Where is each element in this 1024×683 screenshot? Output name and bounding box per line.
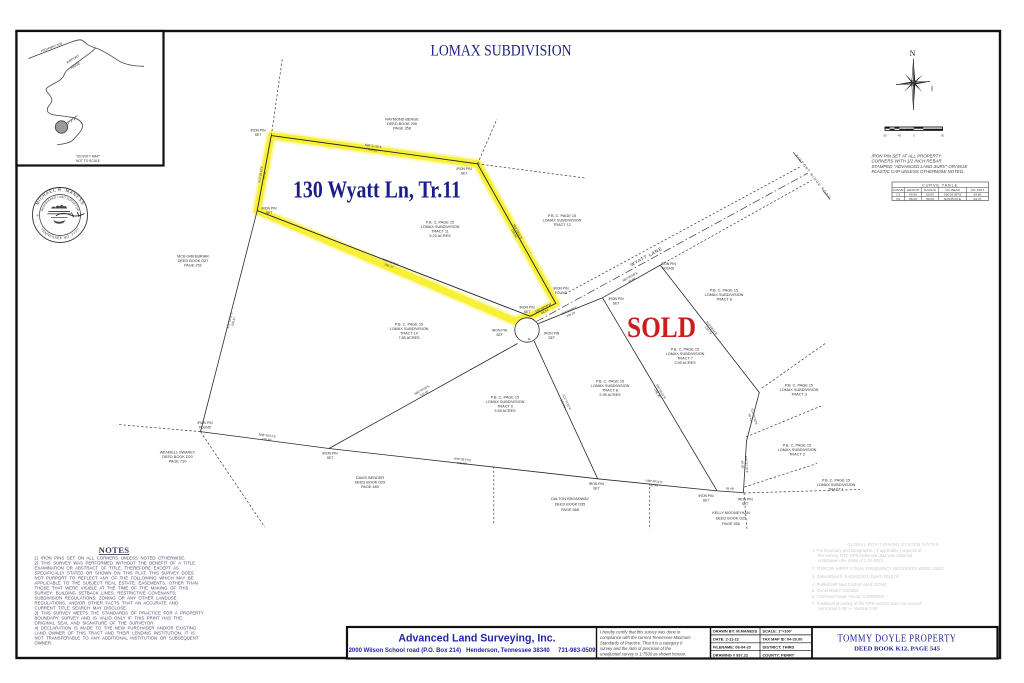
svg-text:SCALE: 1"=100': SCALE: 1"=100': [763, 629, 792, 634]
svg-text:TRACT 6: TRACT 6: [716, 298, 732, 302]
svg-text:on/between the dates of 2-10-2: on/between the dates of 2-10-2022.: [818, 558, 884, 563]
svg-text:IRON PIN: IRON PIN: [608, 297, 624, 301]
svg-text:FOUND: FOUND: [199, 426, 212, 430]
svg-text:SET: SET: [255, 133, 262, 137]
svg-text:2. TOPCON HIPER V DUAL FREQUEN: 2. TOPCON HIPER V DUAL FREQUENCY RECEIVE…: [812, 566, 945, 571]
svg-text:48.58': 48.58': [740, 460, 745, 469]
svg-text:P.B. C, PAGE 15: P.B. C, PAGE 15: [785, 384, 813, 388]
svg-text:DEED BOOK D25: DEED BOOK D25: [716, 517, 747, 521]
svg-text:NOT TO SCALE: NOT TO SCALE: [76, 159, 101, 163]
svg-text:LOMAX SUBDIVISION: LOMAX SUBDIVISION: [390, 327, 429, 331]
svg-text:64.37: 64.37: [974, 197, 982, 201]
svg-text:WENDELL SWAREY: WENDELL SWAREY: [160, 451, 196, 455]
svg-text:130 Wyatt Ln, Tr.11: 130 Wyatt Ln, Tr.11: [293, 177, 461, 204]
svg-text:CURVE TABLE: CURVE TABLE: [922, 182, 958, 187]
svg-text:COUNTY: PERRY: COUNTY: PERRY: [763, 652, 795, 657]
svg-text:IRON PIN: IRON PIN: [553, 287, 569, 291]
svg-text:SET: SET: [703, 499, 710, 503]
svg-text:IRON PIN: IRON PIN: [492, 329, 508, 333]
svg-text:PAGE 358: PAGE 358: [393, 127, 411, 131]
svg-text:P.B. C, PAGE 15: P.B. C, PAGE 15: [822, 479, 850, 483]
svg-text:CD. BEAR: CD. BEAR: [945, 188, 960, 192]
svg-text:FOUND: FOUND: [555, 291, 568, 295]
svg-text:11: 11: [527, 337, 530, 341]
svg-text:SET: SET: [742, 502, 749, 506]
svg-text:DEED BOOK K12, PAGE 545: DEED BOOK K12, PAGE 545: [854, 646, 940, 653]
svg-text:CURVE: CURVE: [893, 188, 904, 192]
svg-text:Horizontal 0.08' +/- Vertica: Horizontal 0.08' +/- Vertical 0.08': [818, 606, 878, 611]
svg-text:PAGE 568: PAGE 568: [561, 508, 579, 512]
svg-text:2.95 ACRES: 2.95 ACRES: [599, 393, 621, 397]
svg-text:1987: 1987: [930, 86, 934, 93]
svg-text:2.99 ACRES: 2.99 ACRES: [674, 361, 696, 365]
svg-text:50.00: 50.00: [926, 197, 934, 201]
svg-text:SET: SET: [266, 211, 273, 215]
svg-text:OWNER.: OWNER.: [35, 641, 53, 646]
svg-text:PLASTIC CAP UNLESS OTHERWISE N: PLASTIC CAP UNLESS OTHERWISE NOTED.: [872, 169, 965, 174]
svg-text:IRON PIN: IRON PIN: [698, 494, 714, 498]
svg-text:IRON PIN: IRON PIN: [250, 129, 266, 133]
svg-text:NOT TRANSFERABLE TO ANY ADDITI: NOT TRANSFERABLE TO ANY ADDITIONAL INSTI…: [35, 636, 199, 641]
svg-text:SET: SET: [613, 302, 620, 306]
svg-text:LOMAX SUBDIVISION: LOMAX SUBDIVISION: [431, 41, 572, 60]
svg-text:unadjusted survey is 1:7500 as: unadjusted survey is 1:7500 as shown her…: [600, 652, 686, 657]
svg-text:"VICINITY MAP": "VICINITY MAP": [76, 155, 101, 159]
svg-text:P.B. C, PAGE 15: P.B. C, PAGE 15: [426, 221, 454, 225]
svg-text:LOMAX SUBDIVISION: LOMAX SUBDIVISION: [421, 225, 460, 229]
svg-text:PAGE 252: PAGE 252: [184, 264, 202, 268]
svg-text:SET: SET: [593, 487, 600, 491]
svg-text:I hereby certify that this sur: I hereby certify that this survey was do…: [600, 630, 681, 635]
svg-text:LOMAX SUBDIVISION: LOMAX SUBDIVISION: [705, 293, 744, 297]
svg-text:P.B. C, PAGE 15: P.B. C, PAGE 15: [548, 214, 576, 218]
svg-text:IRON PIN: IRON PIN: [544, 332, 560, 336]
svg-text:TRACT 7: TRACT 7: [677, 357, 693, 361]
svg-text:FILENAME: 08-04-20: FILENAME: 08-04-20: [713, 644, 751, 649]
svg-text:98.48': 98.48': [726, 486, 735, 491]
svg-text:DEED BOOK 206: DEED BOOK 206: [387, 122, 417, 126]
svg-text:50: 50: [883, 134, 887, 138]
svg-text:TRACT 8: TRACT 8: [602, 389, 618, 393]
svg-text:IRON PIN: IRON PIN: [456, 167, 472, 171]
svg-text:DATE: 2-11-22: DATE: 2-11-22: [713, 637, 740, 642]
svg-text:DISTRICT: THIRD: DISTRICT: THIRD: [763, 644, 795, 649]
svg-text:CD. DIST: CD. DIST: [971, 188, 984, 192]
svg-text:TAX MAP ID: 04-20.00: TAX MAP ID: 04-20.00: [763, 637, 803, 642]
svg-text:DEED BOOK D25: DEED BOOK D25: [355, 481, 386, 485]
svg-text:TRACT 10: TRACT 10: [400, 332, 418, 336]
svg-text:C2: C2: [896, 197, 900, 201]
svg-text:PAGE 556: PAGE 556: [722, 522, 740, 526]
svg-text:SET: SET: [548, 336, 555, 340]
svg-text:IRON PIN: IRON PIN: [738, 498, 754, 502]
svg-text:N: N: [910, 49, 916, 58]
svg-text:IRON PIN: IRON PIN: [197, 421, 213, 425]
svg-text:LOMAX SUBDIVISION: LOMAX SUBDIVISION: [817, 483, 856, 487]
svg-text:TRACT 9: TRACT 9: [497, 405, 513, 409]
svg-text:SET: SET: [461, 172, 468, 176]
svg-text:IRON PIN: IRON PIN: [589, 482, 605, 486]
svg-text:TRACT 11: TRACT 11: [431, 230, 449, 234]
svg-text:LOMAX SUBDIVISION: LOMAX SUBDIVISION: [778, 448, 817, 452]
svg-text:LOMAX SUBDIVISION: LOMAX SUBDIVISION: [543, 219, 582, 223]
svg-text:5.23 ACRES: 5.23 ACRES: [429, 234, 451, 238]
svg-text:7.85 ACRES: 7.85 ACRES: [398, 336, 420, 340]
svg-text:DALTON BROADWAY: DALTON BROADWAY: [551, 497, 589, 501]
svg-text:RADIUS: RADIUS: [924, 188, 936, 192]
svg-text:GLOBAL POSITIONING SYSTEM NOTE: GLOBAL POSITIONING SYSTEM NOTES: [847, 542, 939, 547]
svg-text:TRACT 12: TRACT 12: [553, 223, 571, 227]
svg-text:6. Combined Scale Factor: 0.99: 6. Combined Scale Factor: 0.99996027: [812, 594, 886, 599]
svg-text:N26'25'43"E: N26'25'43"E: [944, 197, 961, 201]
svg-text:4. Published/Fixed Control Use: 4. Published/Fixed Control Used: NONE: [812, 582, 887, 587]
svg-text:DEED BOOK D27: DEED BOOK D27: [178, 259, 209, 263]
svg-text:MCB GREEBRIAR: MCB GREEBRIAR: [177, 255, 209, 259]
svg-text:P.B. C, PAGE 15: P.B. C, PAGE 15: [395, 323, 423, 327]
svg-text:+: +: [37, 213, 40, 218]
svg-text:P.B. C, PAGE 15: P.B. C, PAGE 15: [671, 348, 699, 352]
svg-text:P.B. C, PAGE 15: P.B. C, PAGE 15: [596, 380, 624, 384]
svg-text:SOLD: SOLD: [627, 311, 696, 344]
svg-text:DRAWING # 937.22: DRAWING # 937.22: [713, 652, 749, 657]
svg-text:TRACT 1: TRACT 1: [828, 488, 844, 492]
svg-text:PAGE 710: PAGE 710: [169, 460, 187, 464]
svg-text:DAVID BENDER: DAVID BENDER: [356, 476, 384, 480]
svg-text:SET: SET: [496, 333, 503, 337]
svg-text:3. Datum/Epoch: NAD83(2011) Ep: 3. Datum/Epoch: NAD83(2011) Epoch 2010.0…: [812, 574, 900, 579]
svg-text:P.B. C, PAGE 15: P.B. C, PAGE 15: [710, 289, 738, 293]
svg-text:LOMAX SUBDIVISION: LOMAX SUBDIVISION: [591, 384, 630, 388]
svg-text:IRON PIN: IRON PIN: [322, 452, 338, 456]
svg-text:Advanced Land Surveying, Inc.: Advanced Land Surveying, Inc.: [398, 633, 555, 645]
svg-text:80.26: 80.26: [909, 197, 917, 201]
svg-text:DEED BOOK D35: DEED BOOK D35: [555, 503, 586, 507]
svg-text:IRON PIN: IRON PIN: [661, 262, 677, 266]
svg-text:LENGTH: LENGTH: [907, 188, 920, 192]
svg-text:LOMAX SUBDIVISION: LOMAX SUBDIVISION: [666, 352, 705, 356]
svg-text:40: 40: [898, 134, 902, 138]
svg-text:LOMAX SUBDIVISION: LOMAX SUBDIVISION: [486, 400, 525, 404]
svg-text:compliance with the current Te: compliance with the current Tennessee Mi…: [600, 635, 691, 640]
svg-text:TRACT 3: TRACT 3: [791, 393, 807, 397]
svg-text:Standards of Practice. That it: Standards of Practice. That it is a cate…: [600, 641, 683, 646]
svg-text:FOUND: FOUND: [662, 267, 675, 271]
svg-text:SET: SET: [327, 456, 334, 460]
svg-text:TRACT 2: TRACT 2: [789, 453, 805, 457]
svg-text:LOMAX SUBDIVISION: LOMAX SUBDIVISION: [780, 388, 819, 392]
svg-text:5. Geoid Model: Geoid18: 5. Geoid Model: Geoid18: [812, 588, 859, 593]
svg-text:PAGE 480: PAGE 480: [361, 485, 379, 489]
svg-text:survey and the ratio of precis: survey and the ratio of precision of the: [600, 646, 672, 651]
svg-text:KELLY MOONEYHAN: KELLY MOONEYHAN: [712, 511, 750, 515]
svg-text:SET: SET: [524, 310, 531, 314]
svg-text:50: 50: [941, 134, 945, 138]
svg-text:IRON PIN: IRON PIN: [261, 207, 277, 211]
svg-text:DRAWN BY: M.MANESS: DRAWN BY: M.MANESS: [713, 629, 758, 634]
svg-text:NOTES: NOTES: [99, 545, 130, 555]
svg-text:RAYMOND BENGE: RAYMOND BENGE: [385, 118, 419, 122]
svg-text:2000 Wilson School road (P.O.: 2000 Wilson School road (P.O. Box 214) H…: [349, 648, 596, 654]
svg-text:TOMMY DOYLE PROPERTY: TOMMY DOYLE PROPERTY: [838, 634, 957, 645]
svg-text:P.B. C, PAGE 15: P.B. C, PAGE 15: [491, 396, 519, 400]
svg-text:DEED BOOK D20: DEED BOOK D20: [162, 455, 193, 459]
svg-text:P.B. C, PAGE 15: P.B. C, PAGE 15: [783, 444, 811, 448]
svg-text:3.55 ACRES: 3.55 ACRES: [494, 409, 516, 413]
